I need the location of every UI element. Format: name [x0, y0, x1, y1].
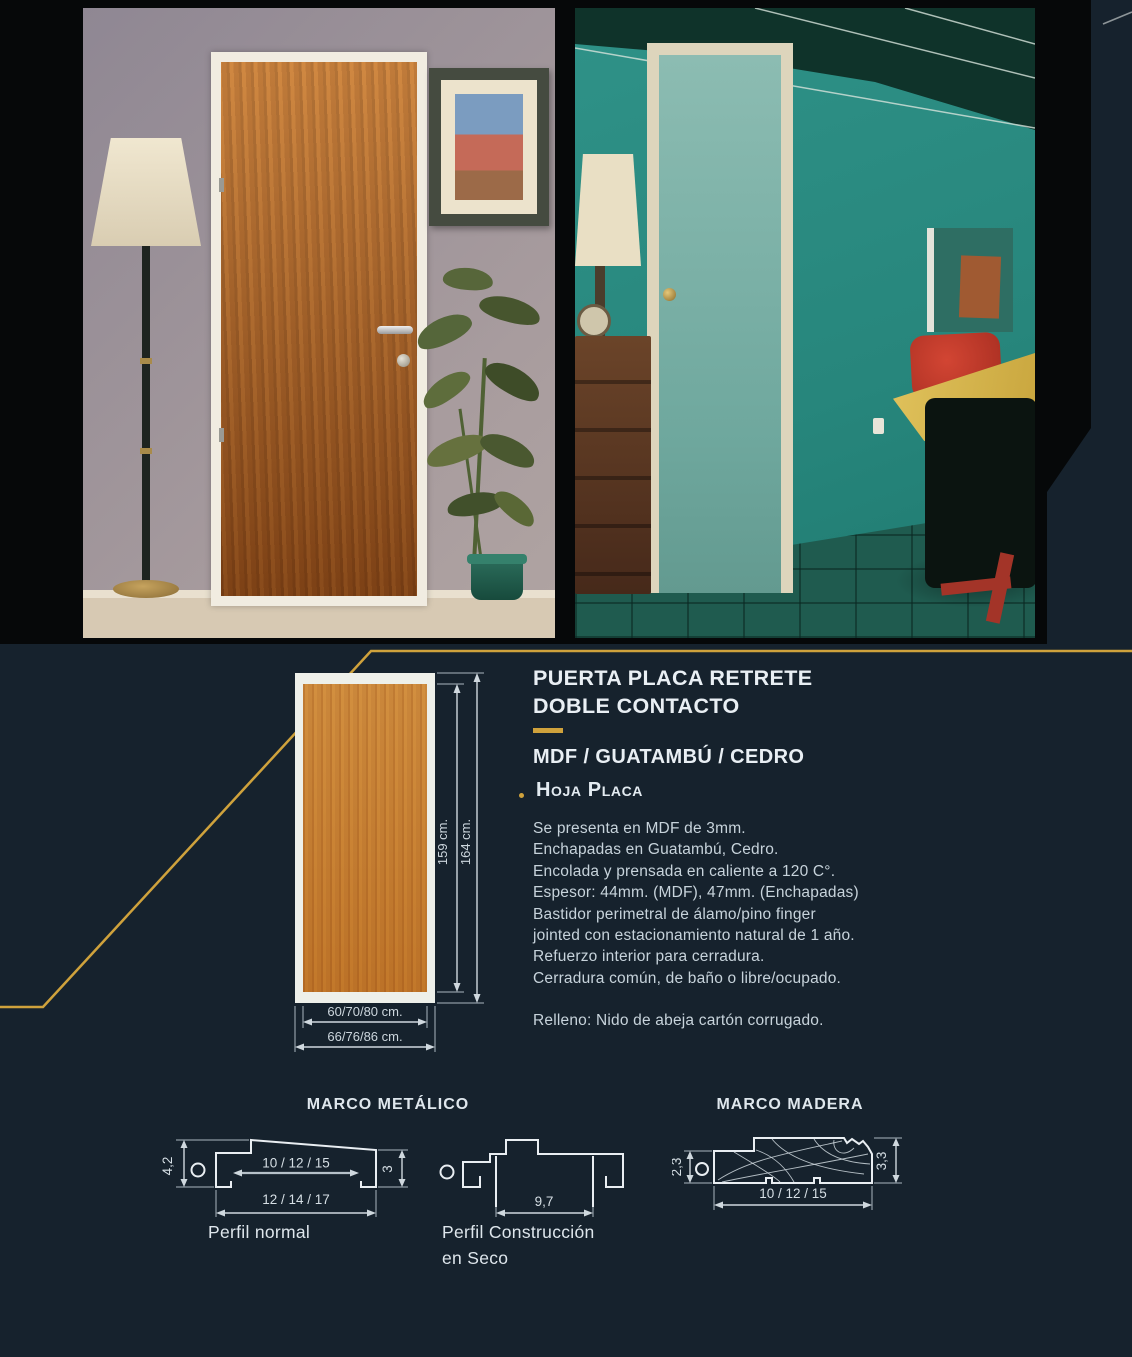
spec-list: Se presenta en MDF de 3mm. Enchapadas en…	[533, 818, 953, 989]
spec-line: Encolada y prensada en caliente a 120 C°…	[533, 861, 953, 882]
dim-height-leaf: 159 cm.	[435, 819, 450, 865]
section-bullet	[519, 793, 524, 798]
floor-lamp-pole	[142, 246, 150, 586]
black-chair	[925, 398, 1035, 588]
ceiling	[575, 8, 1035, 138]
dim-height: 4,2	[160, 1157, 175, 1176]
plant-leaf	[477, 427, 540, 473]
plant-leaf	[477, 290, 543, 329]
dim-width: 9,7	[535, 1194, 554, 1209]
lamp-shade	[575, 154, 641, 266]
photo-wood-door-room	[83, 8, 555, 638]
product-title-line1: PUERTA PLACA RETRETE	[533, 666, 813, 691]
door-lock	[397, 354, 410, 367]
spec-line: jointed con estacionamiento natural de 1…	[533, 925, 953, 946]
floor-lamp-base	[113, 580, 179, 598]
profile-normal-label: Perfil normal	[208, 1222, 310, 1243]
plant-leaf	[412, 307, 476, 355]
section-heading: Hoja Placa	[536, 779, 643, 802]
product-title-line2: DOBLE CONTACTO	[533, 694, 740, 719]
spec-line: Refuerzo interior para cerradura.	[533, 946, 953, 967]
dim-right-height: 3	[380, 1165, 395, 1173]
catalog-page: 159 cm. 164 cm. 60/70/80 cm. 66/76/86 cm…	[0, 0, 1132, 1357]
potted-plant	[413, 258, 548, 603]
dimension-overlay: 159 cm. 164 cm. 60/70/80 cm. 66/76/86 cm…	[280, 660, 500, 1060]
dim-bottom-width: 10 / 12 / 15	[759, 1186, 827, 1201]
spec-line: Cerradura común, de baño o libre/ocupado…	[533, 968, 953, 989]
plant-pot	[471, 558, 523, 600]
spec-line: Bastidor perimetral de álamo/pino finger	[533, 904, 953, 925]
door-hinge	[219, 428, 224, 442]
plant-leaf	[442, 266, 494, 292]
wall-outlet	[873, 418, 884, 434]
wall-picture	[927, 228, 1013, 332]
picture-content	[959, 255, 1001, 318]
floor-lamp-shade	[91, 138, 201, 246]
dim-outer-width: 12 / 14 / 17	[262, 1192, 330, 1207]
plant-pot-rim	[467, 554, 527, 564]
photo-teal-door-office	[575, 8, 1035, 638]
plant-leaf	[481, 355, 546, 408]
dim-width-frame: 66/76/86 cm.	[327, 1029, 402, 1044]
door-diagram: 159 cm. 164 cm. 60/70/80 cm. 66/76/86 cm…	[280, 660, 500, 1060]
picture-art	[455, 94, 523, 200]
framed-picture	[429, 68, 549, 226]
door-knob	[663, 288, 676, 301]
spec-line: Espesor: 44mm. (MDF), 47mm. (Enchapadas)	[533, 882, 953, 903]
wood-cabinet	[575, 336, 651, 594]
clock	[577, 304, 611, 338]
dim-width-leaf: 60/70/80 cm.	[327, 1004, 402, 1019]
dim-right-height: 3,3	[874, 1152, 889, 1171]
band-right-column	[1091, 0, 1132, 644]
door-hinge	[219, 178, 224, 192]
accent-dash	[533, 728, 563, 733]
door-handle	[377, 326, 413, 334]
wood-frame-title: MARCO MADERA	[690, 1096, 890, 1114]
dim-inner-width: 10 / 12 / 15	[262, 1156, 330, 1171]
metal-frame-title: MARCO METÁLICO	[288, 1096, 488, 1114]
materials-subtitle: MDF / GUATAMBÚ / CEDRO	[533, 746, 804, 769]
plant-leaf	[418, 365, 475, 414]
profile-drywall-label-line1: Perfil Construcción	[442, 1222, 595, 1243]
profile-drywall-label-line2: en Seco	[442, 1248, 508, 1269]
teal-door	[659, 55, 781, 593]
dim-left-height: 2,3	[672, 1158, 684, 1177]
spec-line: Se presenta en MDF de 3mm.	[533, 818, 953, 839]
filling-note: Relleno: Nido de abeja cartón corrugado.	[533, 1012, 824, 1030]
lamp-brass-ring	[140, 358, 152, 364]
spec-line: Enchapadas en Guatambú, Cedro.	[533, 839, 953, 860]
lamp-brass-ring	[140, 448, 152, 454]
dim-height-frame: 164 cm.	[458, 819, 473, 865]
profile-wood-drawing: 2,3 3,3 10 / 12 / 15	[672, 1122, 922, 1262]
